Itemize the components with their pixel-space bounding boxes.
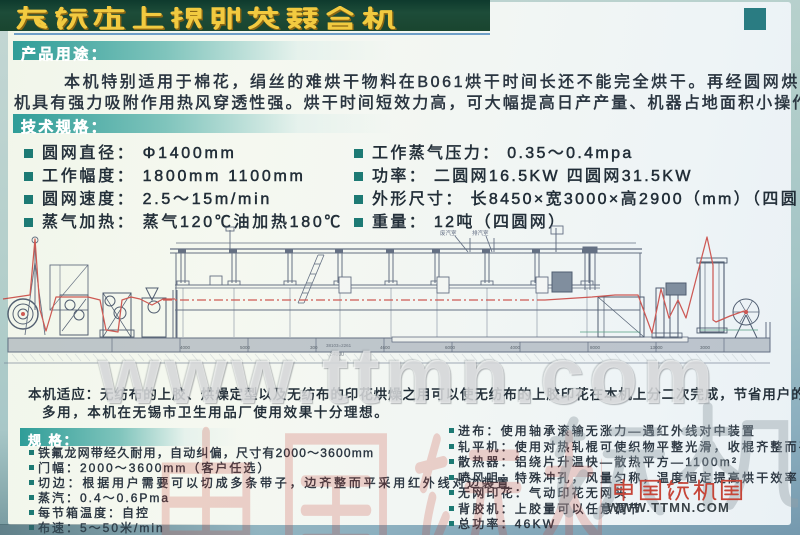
svg-text:排汽室: 排汽室	[472, 229, 489, 237]
svg-text:废汽室: 废汽室	[440, 229, 457, 237]
